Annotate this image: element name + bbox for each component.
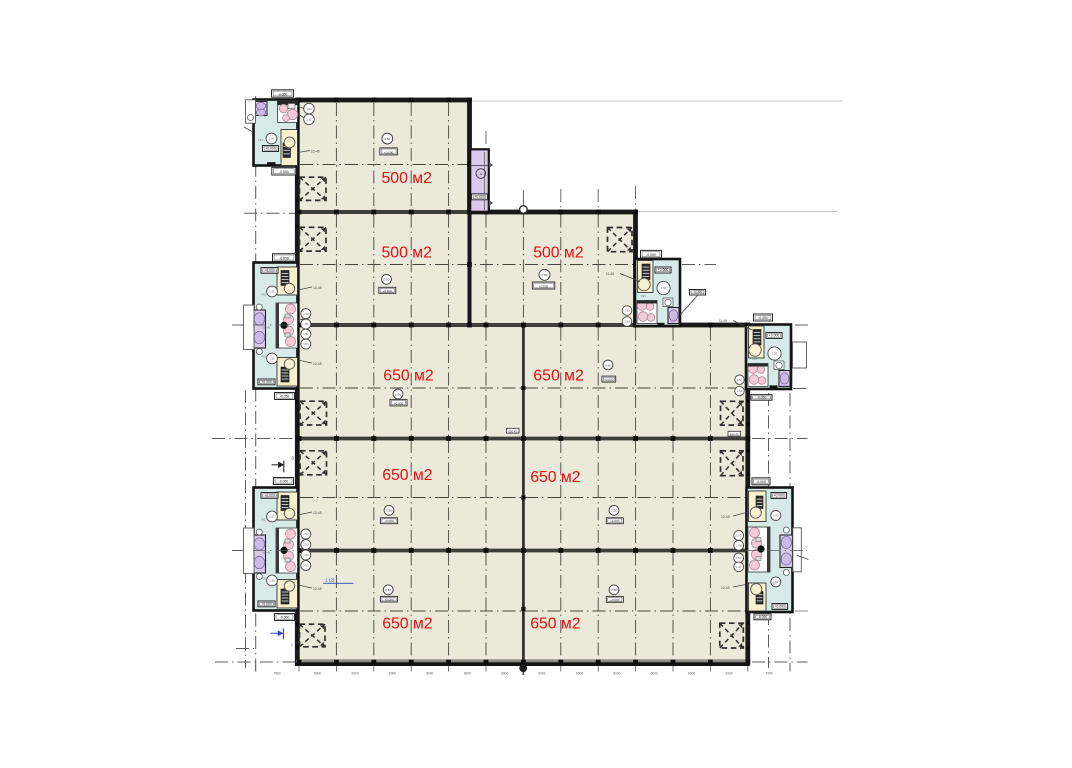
svg-text:6000: 6000 xyxy=(314,672,321,676)
svg-text:+0.000: +0.000 xyxy=(775,605,786,609)
svg-text:6000: 6000 xyxy=(426,672,433,676)
svg-text:1.50: 1.50 xyxy=(303,564,309,568)
svg-text:12-45: 12-45 xyxy=(313,511,322,515)
svg-text:-0.050: -0.050 xyxy=(279,170,289,174)
svg-text:6000: 6000 xyxy=(389,672,396,676)
svg-text:0.50: 0.50 xyxy=(386,509,392,513)
svg-text:1.50: 1.50 xyxy=(306,118,312,122)
svg-text:1.50: 1.50 xyxy=(736,556,742,560)
svg-text:6000: 6000 xyxy=(688,672,695,676)
svg-text:6000: 6000 xyxy=(576,672,583,676)
svg-text:1.50: 1.50 xyxy=(269,357,275,361)
svg-text:500 м2: 500 м2 xyxy=(382,244,432,261)
svg-text:1.50: 1.50 xyxy=(737,389,743,393)
svg-text:1.50: 1.50 xyxy=(303,532,309,536)
svg-text:6000: 6000 xyxy=(539,672,546,676)
svg-text:+0.000: +0.000 xyxy=(774,494,785,498)
svg-text:-0.050: -0.050 xyxy=(280,616,290,620)
svg-text:3: 3 xyxy=(292,456,295,461)
svg-text:12-45: 12-45 xyxy=(721,515,730,519)
svg-text:0.50: 0.50 xyxy=(384,137,390,141)
svg-text:0.50: 0.50 xyxy=(385,588,391,592)
svg-text:+0.000: +0.000 xyxy=(383,289,393,293)
svg-text:РЕУ: РЕУ xyxy=(262,518,267,522)
svg-text:+0.000: +0.000 xyxy=(610,519,620,523)
svg-text:650 м2: 650 м2 xyxy=(533,367,583,384)
svg-text:1: 1 xyxy=(291,643,293,647)
svg-text:РЕУ: РЕУ xyxy=(262,355,267,359)
svg-text:РЕУ: РЕУ xyxy=(772,582,777,586)
svg-text:РЕУ: РЕУ xyxy=(262,577,267,581)
svg-text:6000: 6000 xyxy=(464,672,471,676)
svg-text:РЕУ: РЕУ xyxy=(258,138,263,142)
svg-text:6000: 6000 xyxy=(501,672,508,676)
svg-text:1.50: 1.50 xyxy=(303,553,309,557)
svg-text:РЕУ: РЕУ xyxy=(752,357,757,361)
svg-text:0.50: 0.50 xyxy=(611,588,617,592)
svg-text:0.50: 0.50 xyxy=(542,273,548,277)
svg-text:Щ2-45: Щ2-45 xyxy=(263,326,271,330)
svg-text:11: 11 xyxy=(479,172,482,176)
svg-text:РЕУ: РЕУ xyxy=(262,293,267,297)
svg-text:1.50: 1.50 xyxy=(736,544,742,548)
svg-text:+0.000: +0.000 xyxy=(604,378,614,382)
svg-text:12-45: 12-45 xyxy=(311,149,320,153)
svg-text:12-45: 12-45 xyxy=(313,362,322,366)
svg-text:650.43: 650.43 xyxy=(508,429,517,433)
svg-text:-0.050: -0.050 xyxy=(756,480,766,484)
svg-text:РЕУ: РЕУ xyxy=(641,294,646,298)
svg-text:-0.050: -0.050 xyxy=(279,480,289,484)
svg-text:1.50: 1.50 xyxy=(303,312,309,316)
svg-text:1.50: 1.50 xyxy=(269,579,275,583)
svg-text:1.50: 1.50 xyxy=(303,342,309,346)
svg-text:+0.000: +0.000 xyxy=(384,150,394,154)
svg-text:0.50: 0.50 xyxy=(605,363,611,367)
svg-text:650 м2: 650 м2 xyxy=(530,469,580,486)
svg-text:650.43: 650.43 xyxy=(730,432,739,436)
svg-text:-0.050: -0.050 xyxy=(280,395,290,399)
svg-text:-0.050: -0.050 xyxy=(757,395,767,399)
svg-text:+0.000: +0.000 xyxy=(658,268,669,272)
svg-text:7200: 7200 xyxy=(765,672,772,676)
svg-text:+0.000: +0.000 xyxy=(539,285,549,289)
svg-text:1.50: 1.50 xyxy=(269,515,275,519)
svg-text:1.50: 1.50 xyxy=(772,352,778,356)
svg-text:1.50: 1.50 xyxy=(303,332,309,336)
svg-text:1.50: 1.50 xyxy=(303,543,309,547)
svg-text:-0.050: -0.050 xyxy=(693,290,703,294)
svg-text:1.50: 1.50 xyxy=(737,378,743,382)
svg-text:650 м2: 650 м2 xyxy=(530,615,580,632)
svg-text:1.50: 1.50 xyxy=(736,534,742,538)
svg-text:1.50: 1.50 xyxy=(269,137,275,141)
svg-text:-0.050: -0.050 xyxy=(646,253,656,257)
svg-text:+0.000: +0.000 xyxy=(261,380,272,384)
svg-text:1.50: 1.50 xyxy=(773,514,779,518)
svg-text:12-45: 12-45 xyxy=(721,586,730,590)
svg-text:500 м2: 500 м2 xyxy=(533,244,583,261)
svg-text:1.50: 1.50 xyxy=(303,322,309,326)
svg-text:+0.000: +0.000 xyxy=(264,269,275,273)
svg-text:+0.000: +0.000 xyxy=(265,147,276,151)
svg-text:12-45: 12-45 xyxy=(313,286,322,290)
svg-text:1.50: 1.50 xyxy=(736,565,742,569)
svg-text:650 м2: 650 м2 xyxy=(382,467,432,484)
svg-text:12-45: 12-45 xyxy=(313,587,322,591)
svg-text:-0.050: -0.050 xyxy=(758,316,768,320)
svg-text:-0.050: -0.050 xyxy=(758,615,768,619)
svg-text:0.50: 0.50 xyxy=(384,278,390,282)
svg-text:+0.000: +0.000 xyxy=(394,401,404,405)
svg-text:6000: 6000 xyxy=(352,672,359,676)
svg-text:+0.000: +0.000 xyxy=(384,598,394,602)
svg-text:6000: 6000 xyxy=(613,672,620,676)
svg-text:+0.000: +0.000 xyxy=(474,195,485,199)
svg-text:500 м2: 500 м2 xyxy=(382,170,432,187)
svg-text:1.50: 1.50 xyxy=(269,290,275,294)
svg-text:7500: 7500 xyxy=(273,672,280,676)
svg-text:1.50: 1.50 xyxy=(661,286,667,290)
svg-text:11-45: 11-45 xyxy=(719,319,727,323)
svg-text:+0.000: +0.000 xyxy=(769,334,780,338)
svg-text:1.50: 1.50 xyxy=(306,107,312,111)
svg-text:+0.000: +0.000 xyxy=(610,598,620,602)
svg-text:-0.050: -0.050 xyxy=(279,257,289,261)
svg-text:11-45: 11-45 xyxy=(606,272,614,276)
svg-text:+0.000: +0.000 xyxy=(384,519,394,523)
svg-text:-0.050: -0.050 xyxy=(278,92,288,96)
svg-text:650 м2: 650 м2 xyxy=(383,367,433,384)
svg-text:1.50: 1.50 xyxy=(624,309,630,313)
svg-text:Щ2-45: Щ2-45 xyxy=(263,551,271,555)
svg-text:0.50: 0.50 xyxy=(611,509,617,513)
svg-text:+0.000: +0.000 xyxy=(264,494,275,498)
svg-text:0.50: 0.50 xyxy=(395,392,401,396)
svg-text:6000: 6000 xyxy=(651,672,658,676)
svg-text:1 (2): 1 (2) xyxy=(325,578,335,583)
svg-text:+0.000: +0.000 xyxy=(261,602,272,606)
svg-text:РЕУ: РЕУ xyxy=(772,518,777,522)
svg-text:650 м2: 650 м2 xyxy=(382,615,432,632)
svg-text:6000: 6000 xyxy=(726,672,733,676)
svg-text:1.50: 1.50 xyxy=(624,320,630,324)
